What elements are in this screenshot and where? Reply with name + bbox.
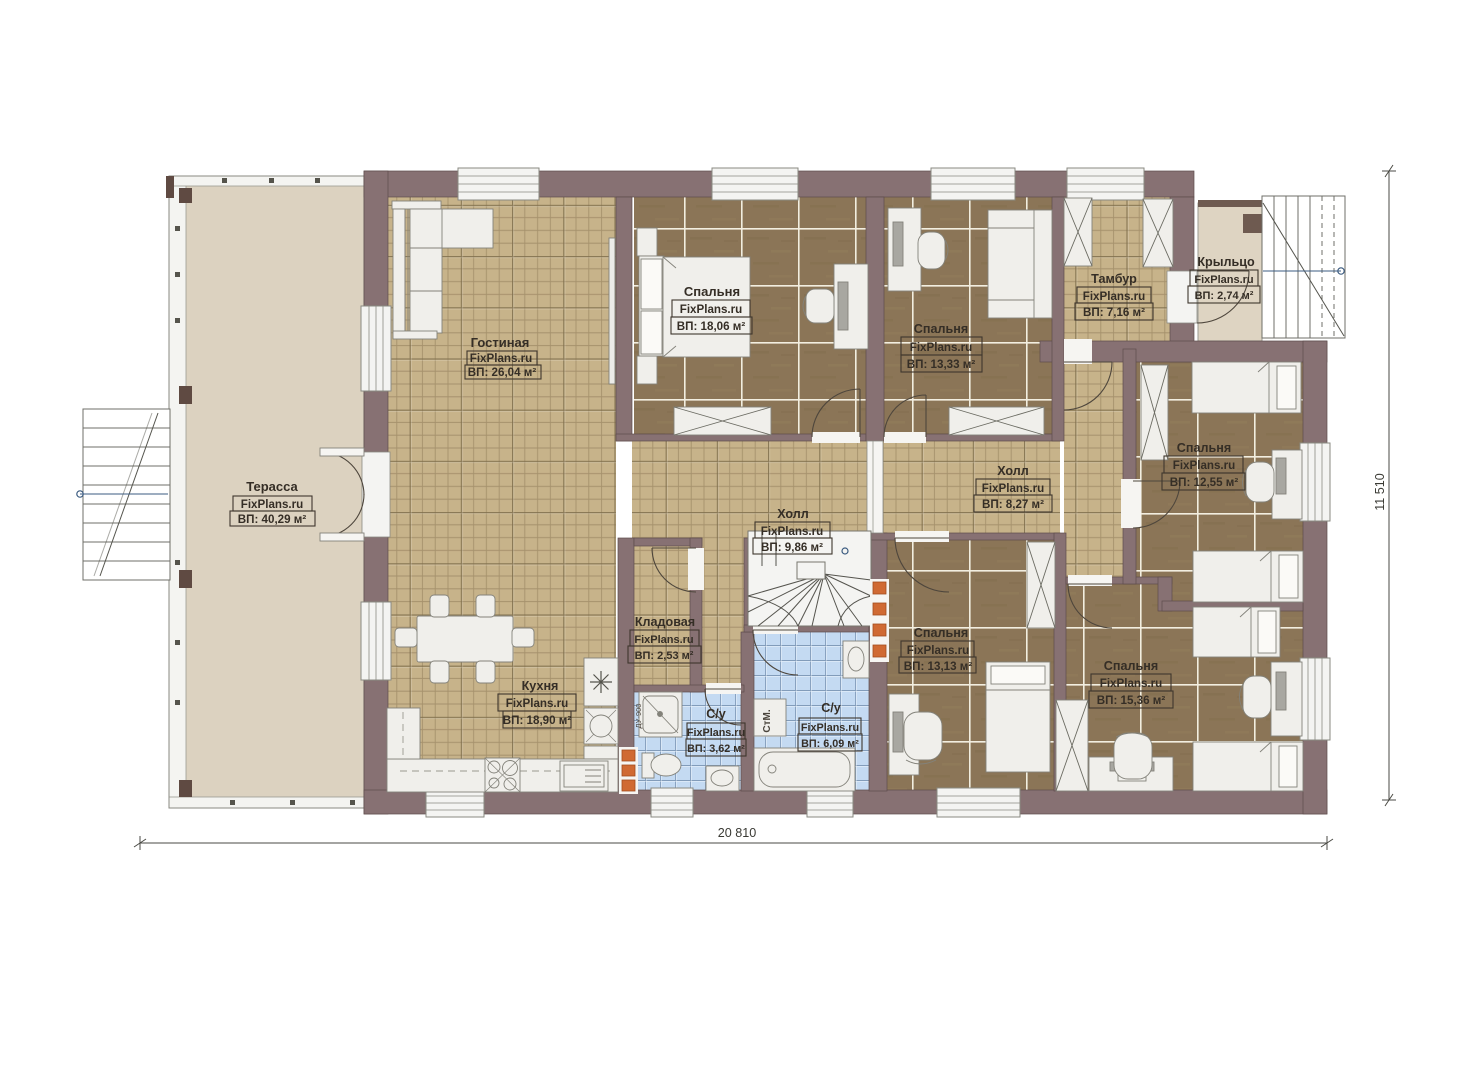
svg-text:Спальня: Спальня bbox=[684, 284, 740, 299]
svg-text:FixPlans.ru: FixPlans.ru bbox=[761, 525, 824, 538]
svg-text:ВП: 12,55 м²: ВП: 12,55 м² bbox=[1170, 476, 1239, 489]
svg-text:ВП: 15,36 м²: ВП: 15,36 м² bbox=[1097, 694, 1166, 707]
svg-text:ВП: 2,74 м²: ВП: 2,74 м² bbox=[1195, 290, 1254, 302]
svg-text:ВП: 6,09 м²: ВП: 6,09 м² bbox=[801, 738, 859, 750]
svg-text:FixPlans.ru: FixPlans.ru bbox=[1173, 459, 1236, 472]
svg-text:FixPlans.ru: FixPlans.ru bbox=[907, 644, 970, 657]
svg-text:ВП: 9,86 м²: ВП: 9,86 м² bbox=[761, 541, 823, 554]
svg-text:ВП: 8,27 м²: ВП: 8,27 м² bbox=[982, 498, 1044, 511]
svg-text:ВП: 26,04 м²: ВП: 26,04 м² bbox=[468, 366, 537, 379]
svg-text:FixPlans.ru: FixPlans.ru bbox=[1100, 677, 1163, 690]
svg-text:ВП: 18,06 м²: ВП: 18,06 м² bbox=[677, 320, 746, 333]
svg-text:ВП: 7,16 м²: ВП: 7,16 м² bbox=[1083, 306, 1145, 319]
svg-text:FixPlans.ru: FixPlans.ru bbox=[680, 303, 743, 316]
svg-text:FixPlans.ru: FixPlans.ru bbox=[982, 482, 1045, 495]
svg-text:FixPlans.ru: FixPlans.ru bbox=[241, 498, 304, 511]
svg-text:FixPlans.ru: FixPlans.ru bbox=[1083, 290, 1146, 303]
svg-text:FixPlans.ru: FixPlans.ru bbox=[687, 727, 745, 739]
svg-text:Спальня: Спальня bbox=[914, 626, 968, 640]
svg-text:СтМ.: СтМ. bbox=[762, 709, 773, 732]
svg-text:FixPlans.ru: FixPlans.ru bbox=[910, 341, 973, 354]
svg-text:ВП: 3,62 м²: ВП: 3,62 м² bbox=[687, 743, 745, 755]
svg-text:Холл: Холл bbox=[777, 507, 809, 521]
svg-text:20 810: 20 810 bbox=[718, 826, 757, 840]
svg-text:11 510: 11 510 bbox=[1373, 473, 1387, 511]
svg-text:Кухня: Кухня bbox=[522, 679, 559, 693]
svg-text:ВП: 40,29 м²: ВП: 40,29 м² bbox=[238, 513, 307, 526]
svg-text:FixPlans.ru: FixPlans.ru bbox=[801, 722, 859, 734]
svg-text:FixPlans.ru: FixPlans.ru bbox=[634, 634, 693, 646]
svg-text:ВП: 13,33 м²: ВП: 13,33 м² bbox=[907, 358, 976, 371]
svg-text:Кладовая: Кладовая bbox=[635, 615, 695, 629]
svg-text:ВП: 18,90 м²: ВП: 18,90 м² bbox=[503, 714, 572, 727]
svg-text:С/у: С/у bbox=[706, 707, 726, 721]
svg-text:FixPlans.ru: FixPlans.ru bbox=[470, 352, 533, 365]
svg-text:Крыльцо: Крыльцо bbox=[1197, 255, 1255, 269]
svg-text:С/у: С/у bbox=[821, 701, 841, 715]
svg-text:FixPlans.ru: FixPlans.ru bbox=[506, 697, 569, 710]
svg-text:Спальня: Спальня bbox=[1177, 441, 1231, 455]
svg-text:FixPlans.ru: FixPlans.ru bbox=[1194, 274, 1253, 286]
svg-text:ДУ-900: ДУ-900 bbox=[634, 704, 643, 729]
svg-text:ВП: 2,53 м²: ВП: 2,53 м² bbox=[635, 650, 694, 662]
svg-text:Тамбур: Тамбур bbox=[1091, 272, 1137, 286]
svg-text:Холл: Холл bbox=[997, 464, 1029, 478]
svg-text:Гостиная: Гостиная bbox=[471, 335, 530, 350]
svg-text:Спальня: Спальня bbox=[1104, 659, 1158, 673]
svg-text:Спальня: Спальня bbox=[914, 322, 968, 336]
svg-text:Терасса: Терасса bbox=[246, 479, 298, 494]
svg-text:ВП: 13,13 м²: ВП: 13,13 м² bbox=[904, 660, 973, 673]
